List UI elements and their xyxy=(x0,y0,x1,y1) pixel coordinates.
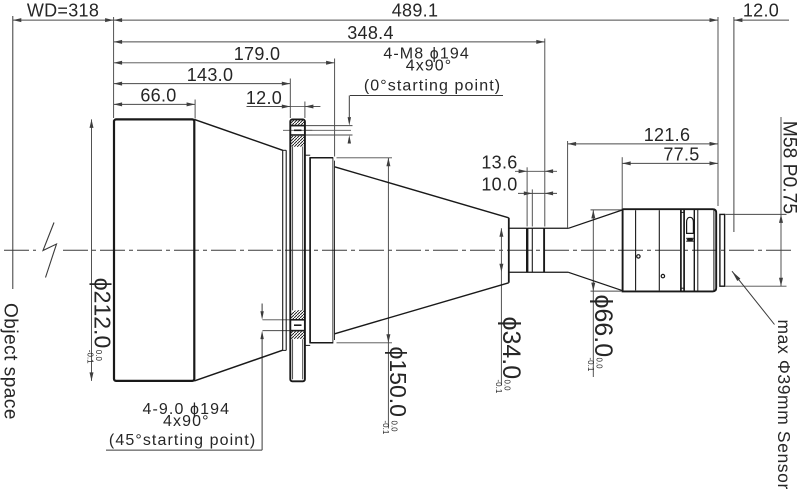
svg-text:4x90°: 4x90° xyxy=(163,413,210,430)
svg-text:77.5: 77.5 xyxy=(663,144,699,164)
svg-text:-0.1: -0.1 xyxy=(381,421,390,435)
svg-text:66.0: 66.0 xyxy=(140,86,176,106)
svg-text:179.0: 179.0 xyxy=(234,44,281,64)
svg-text:ϕ34.0: ϕ34.0 xyxy=(497,317,525,380)
svg-text:ϕ66.0: ϕ66.0 xyxy=(589,295,617,358)
svg-text:(45°starting point): (45°starting point) xyxy=(109,432,256,449)
svg-text:(0°starting point): (0°starting point) xyxy=(364,78,501,95)
svg-text:4x90°: 4x90° xyxy=(406,57,453,74)
svg-text:max Φ39mm Sensor: max Φ39mm Sensor xyxy=(774,320,794,490)
svg-text:-0.1: -0.1 xyxy=(85,350,94,364)
svg-text:13.6: 13.6 xyxy=(481,153,517,173)
svg-text:12.0: 12.0 xyxy=(743,1,779,21)
svg-text:WD=318: WD=318 xyxy=(27,1,99,21)
svg-text:M58 P0.75: M58 P0.75 xyxy=(778,121,799,214)
svg-text:143.0: 143.0 xyxy=(187,65,234,85)
svg-text:348.4: 348.4 xyxy=(347,23,394,43)
svg-text:-0.1: -0.1 xyxy=(586,358,595,372)
svg-text:489.1: 489.1 xyxy=(392,1,439,21)
svg-text:12.0: 12.0 xyxy=(246,88,282,108)
svg-text:Object space: Object space xyxy=(0,303,20,420)
svg-text:-0.1: -0.1 xyxy=(494,380,503,394)
svg-text:ϕ212.0: ϕ212.0 xyxy=(90,278,116,348)
svg-text:10.0: 10.0 xyxy=(481,175,517,195)
svg-text:121.6: 121.6 xyxy=(644,125,691,145)
svg-text:ϕ150.0: ϕ150.0 xyxy=(385,347,411,417)
